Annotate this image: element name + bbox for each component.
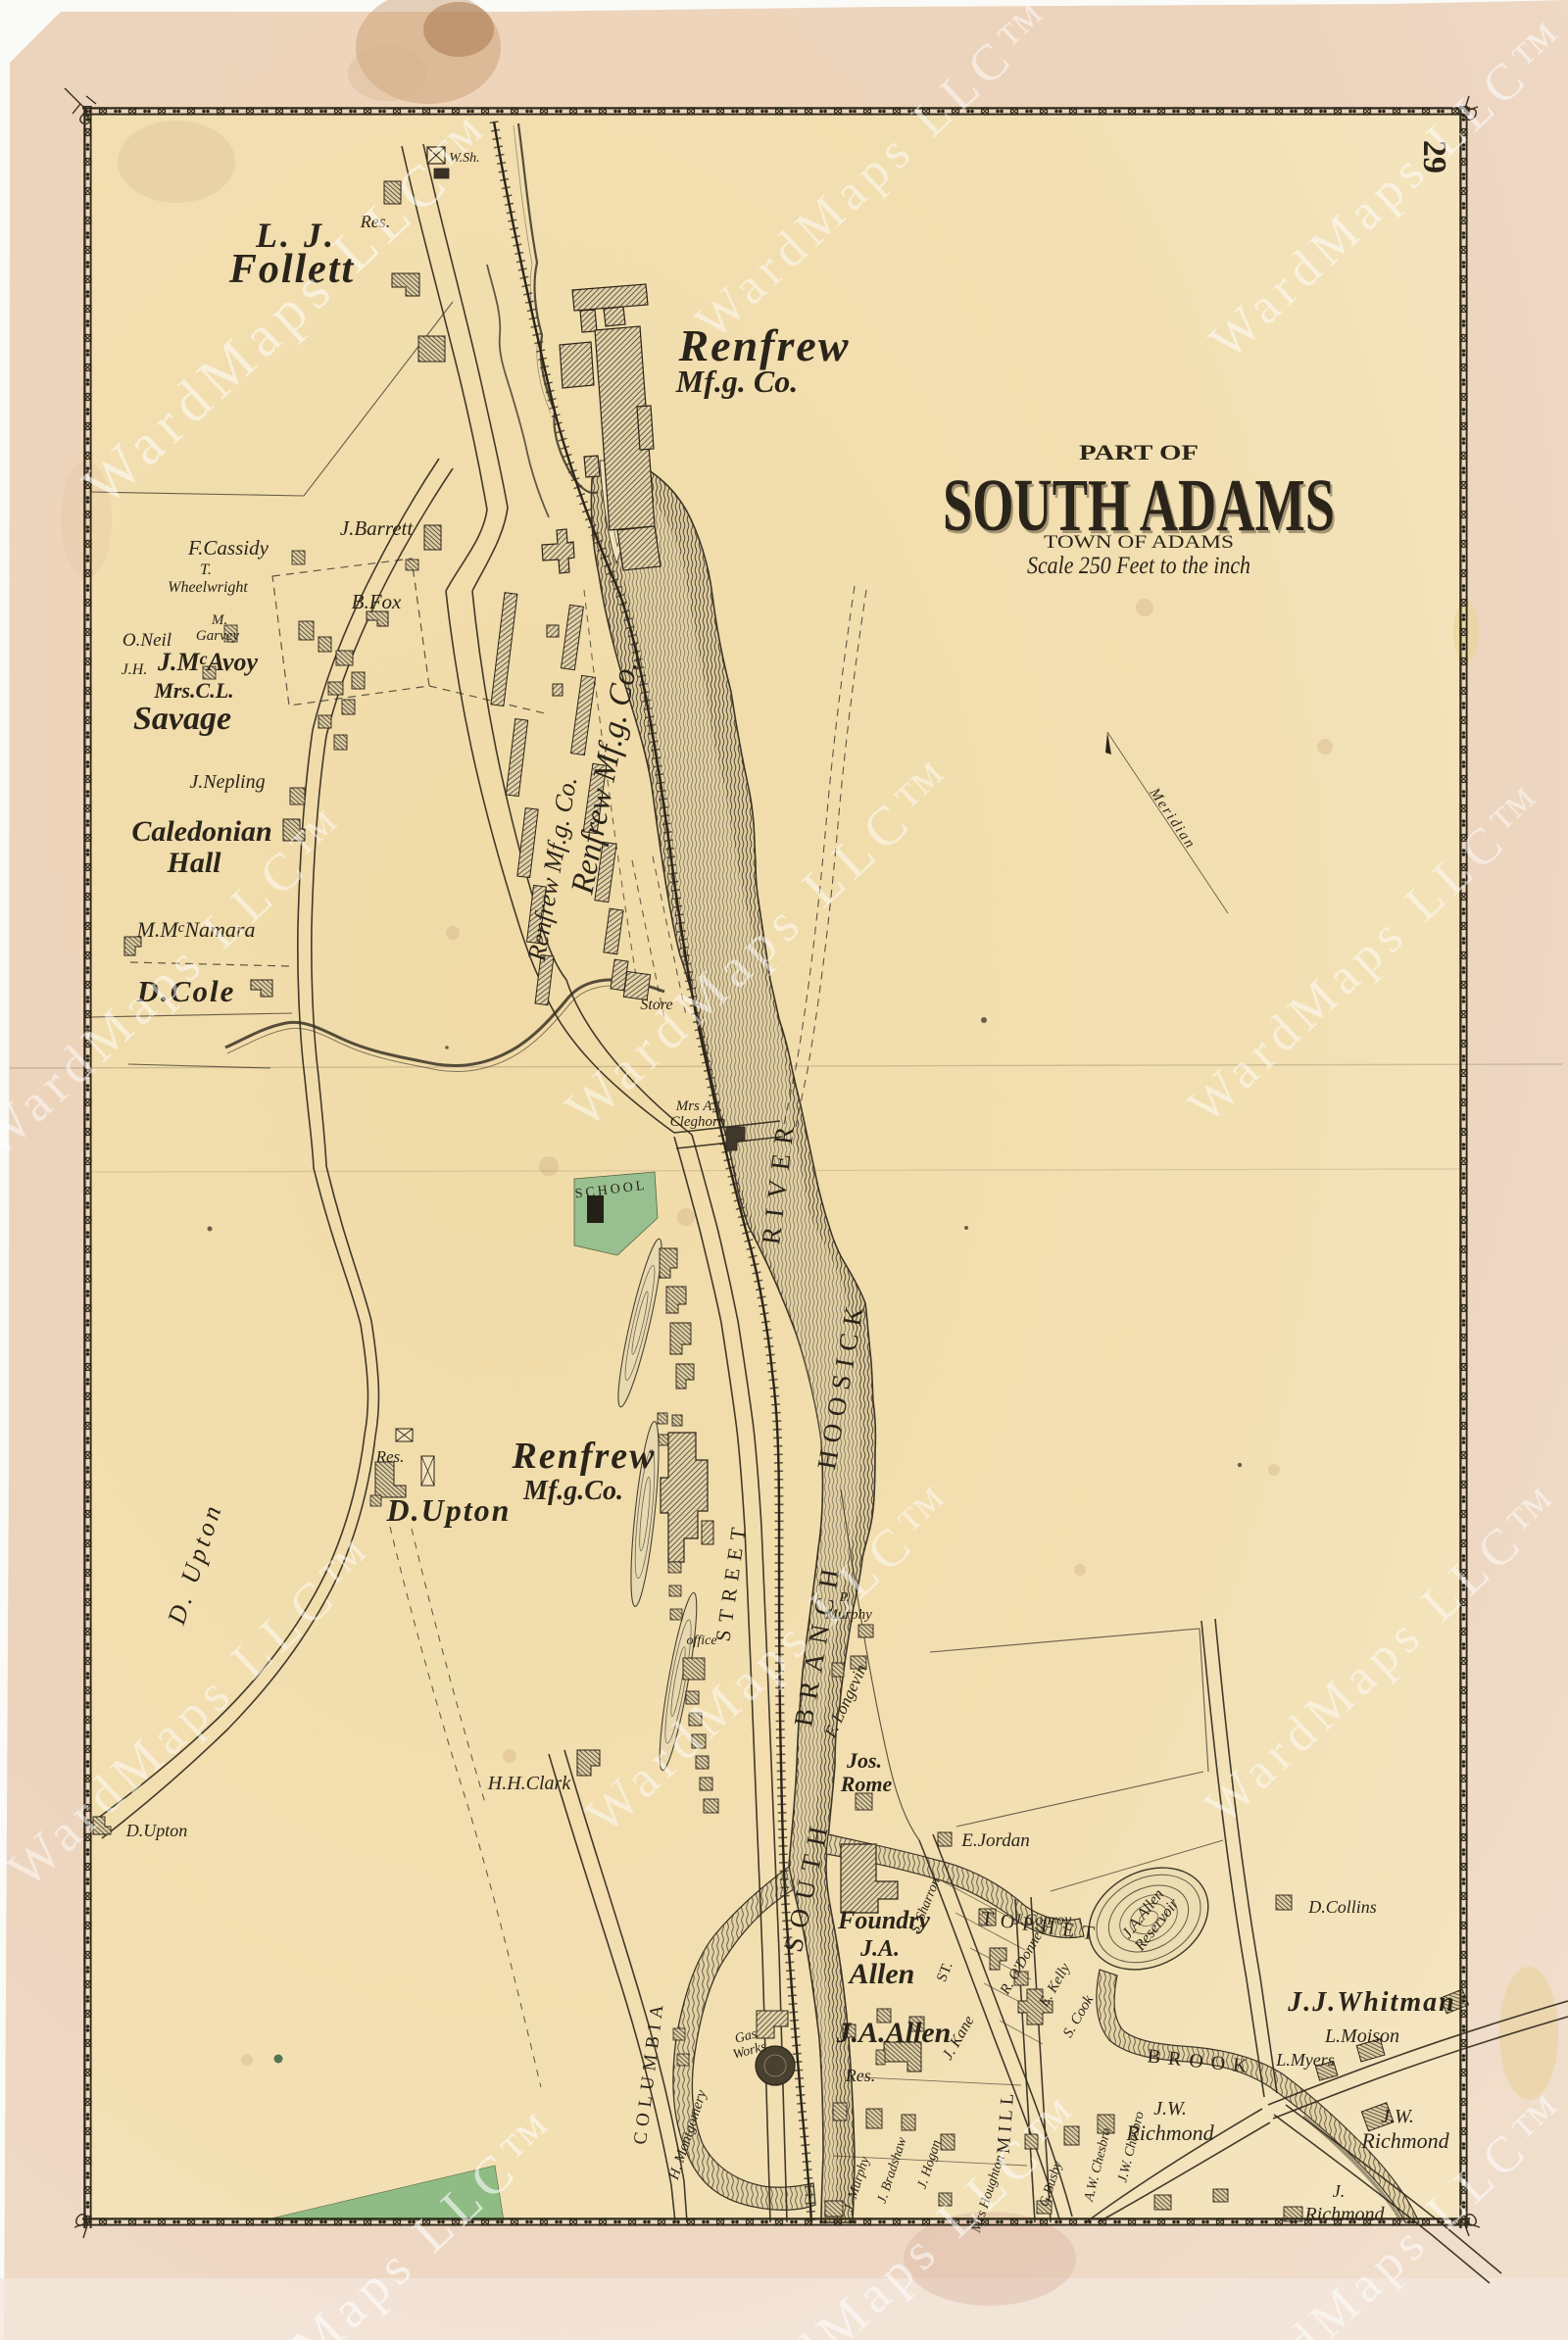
svg-text:J.A.Allen: J.A.Allen bbox=[836, 2017, 952, 2049]
svg-text:Mf.g. Co.: Mf.g. Co. bbox=[675, 364, 798, 399]
svg-text:Jos.: Jos. bbox=[846, 1748, 882, 1773]
svg-text:J.Nepling: J.Nepling bbox=[189, 771, 265, 793]
svg-text:J.W.: J.W. bbox=[1153, 2098, 1187, 2120]
svg-text:J.H.: J.H. bbox=[122, 661, 148, 678]
svg-text:L.Moison: L.Moison bbox=[1324, 2025, 1399, 2047]
svg-text:Caledonian: Caledonian bbox=[131, 815, 271, 848]
svg-text:Hall: Hall bbox=[166, 847, 221, 879]
svg-text:F.Cassidy: F.Cassidy bbox=[187, 536, 269, 560]
svg-text:Mf.g.Co.: Mf.g.Co. bbox=[522, 1476, 623, 1506]
svg-text:H.H.Clark: H.H.Clark bbox=[487, 1773, 572, 1794]
svg-text:PART OF: PART OF bbox=[1079, 440, 1199, 464]
svg-text:J.J.Whitman: J.J.Whitman bbox=[1287, 1987, 1455, 2018]
svg-text:J.Barrett: J.Barrett bbox=[340, 516, 415, 540]
svg-text:J.Conroy: J.Conroy bbox=[1014, 1912, 1072, 1928]
svg-text:Renfrew: Renfrew bbox=[512, 1436, 657, 1477]
svg-text:D.Upton: D.Upton bbox=[125, 1821, 188, 1840]
svg-text:Savage: Savage bbox=[133, 701, 231, 737]
svg-text:M.: M. bbox=[211, 612, 227, 628]
svg-text:T.: T. bbox=[200, 561, 212, 578]
svg-text:Foundry: Foundry bbox=[837, 1906, 930, 1934]
svg-text:D.Collins: D.Collins bbox=[1307, 1897, 1377, 1917]
svg-text:Rome: Rome bbox=[840, 1772, 893, 1796]
svg-text:Wheelwright: Wheelwright bbox=[168, 579, 248, 596]
svg-text:Mrs.C.L.: Mrs.C.L. bbox=[153, 678, 233, 703]
svg-text:Res.: Res. bbox=[845, 2066, 876, 2085]
svg-text:Allen: Allen bbox=[848, 1958, 915, 1990]
svg-text:B.Fox: B.Fox bbox=[352, 590, 402, 613]
svg-text:Richmond: Richmond bbox=[1125, 2121, 1214, 2145]
svg-text:L.Myers: L.Myers bbox=[1275, 2050, 1335, 2070]
svg-text:J.McAvoy: J.McAvoy bbox=[157, 648, 259, 676]
svg-text:D.Upton: D.Upton bbox=[386, 1492, 512, 1528]
svg-text:office: office bbox=[686, 1633, 716, 1648]
svg-text:Richmond: Richmond bbox=[1360, 2128, 1449, 2153]
svg-text:E.Jordan: E.Jordan bbox=[960, 1830, 1029, 1851]
svg-text:J.: J. bbox=[1333, 2181, 1346, 2201]
svg-text:J.W.: J.W. bbox=[1381, 2106, 1414, 2127]
svg-text:TOWN OF ADAMS: TOWN OF ADAMS bbox=[1044, 532, 1234, 553]
svg-text:Res.: Res. bbox=[375, 1447, 405, 1466]
svg-text:Scale 250 Feet to the inch: Scale 250 Feet to the inch bbox=[1027, 553, 1250, 579]
svg-text:Garvey: Garvey bbox=[196, 628, 239, 644]
svg-text:Cleghorn: Cleghorn bbox=[670, 1114, 726, 1130]
svg-text:Mrs A.: Mrs A. bbox=[675, 1098, 716, 1114]
